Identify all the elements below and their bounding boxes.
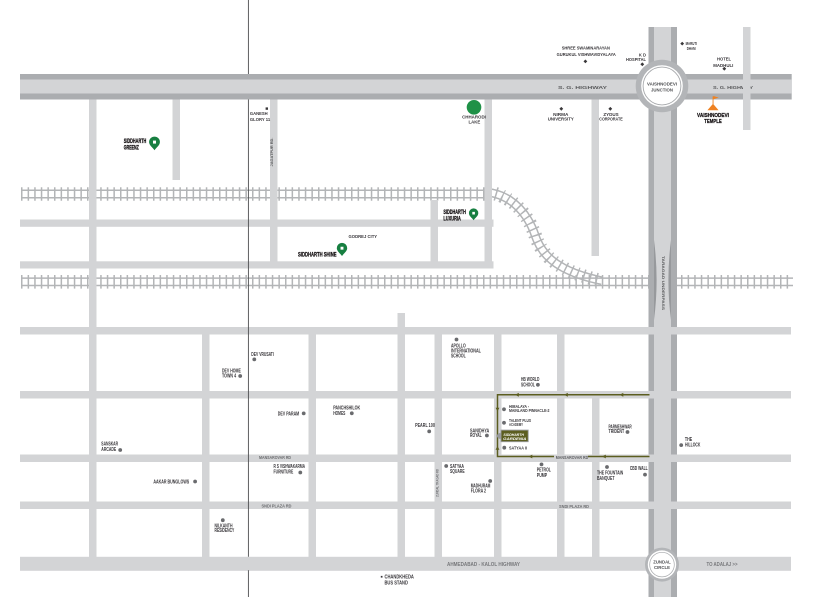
svg-text:TOWN 4: TOWN 4	[222, 373, 236, 379]
svg-text:ZUNDAL TRAGAD RD: ZUNDAL TRAGAD RD	[436, 469, 440, 497]
svg-text:CORPORATE: CORPORATE	[599, 117, 622, 122]
svg-text:VAISHNODEVI: VAISHNODEVI	[647, 81, 677, 86]
svg-text:LAKE: LAKE	[469, 120, 482, 126]
svg-text:FURNITURE: FURNITURE	[274, 470, 294, 476]
svg-text:ACADEMY: ACADEMY	[509, 422, 523, 427]
svg-text:SIDDHARTH: SIDDHARTH	[443, 210, 466, 216]
svg-text:JAGATPUR RD.: JAGATPUR RD.	[269, 138, 274, 167]
svg-text:GANESH: GANESH	[250, 111, 268, 117]
svg-text:MADHULI: MADHULI	[713, 63, 733, 68]
svg-text:GARDENIA: GARDENIA	[503, 437, 527, 441]
svg-text:GLORY 11: GLORY 11	[250, 117, 271, 123]
svg-text:HOTEL: HOTEL	[717, 56, 731, 61]
svg-text:SATYAA II: SATYAA II	[509, 445, 527, 450]
svg-text:DEV VRUSATI: DEV VRUSATI	[251, 352, 274, 358]
svg-text:TEMPLE: TEMPLE	[704, 119, 722, 125]
svg-text:ROYAL: ROYAL	[470, 433, 482, 439]
svg-text:SIDDHARTH: SIDDHARTH	[124, 139, 147, 145]
svg-text:RESIDENCY: RESIDENCY	[215, 528, 235, 534]
svg-text:JUNCTION: JUNCTION	[651, 87, 674, 92]
svg-text:AAKAR BUNGLOWS: AAKAR BUNGLOWS	[153, 480, 189, 486]
svg-text:SNDI PLAZA RD: SNDI PLAZA RD	[559, 504, 589, 509]
svg-text:GODREJ CITY: GODREJ CITY	[349, 234, 378, 239]
svg-text:GURUKUL VISHWAVIDYALAYA: GURUKUL VISHWAVIDYALAYA	[557, 52, 617, 58]
svg-text:SCHOOL: SCHOOL	[521, 382, 535, 388]
svg-text:MARUTI: MARUTI	[686, 41, 697, 46]
svg-text:DHAM: DHAM	[687, 46, 696, 51]
svg-text:HILLOCK: HILLOCK	[685, 443, 701, 449]
svg-text:DEV PARAM: DEV PARAM	[278, 412, 299, 418]
svg-text:ZUNDAL: ZUNDAL	[653, 559, 671, 564]
svg-text:LUXURIA: LUXURIA	[443, 216, 461, 222]
svg-text:SCHOOL: SCHOOL	[451, 354, 466, 360]
svg-text:GREENZ: GREENZ	[124, 145, 139, 151]
svg-text:TRIDENT: TRIDENT	[609, 429, 625, 435]
svg-text:MANSAROVAR RD: MANSAROVAR RD	[259, 455, 292, 460]
svg-text:SIDDHARTH SHINE: SIDDHARTH SHINE	[298, 252, 337, 258]
svg-text:AHMEDABAD - KALOL HIGHWAY: AHMEDABAD - KALOL HIGHWAY	[447, 562, 520, 568]
svg-text:BUS STAND: BUS STAND	[385, 580, 409, 586]
svg-text:CIRCLE: CIRCLE	[654, 565, 670, 570]
svg-text:SHREE SWAMINARAYAN: SHREE SWAMINARAYAN	[562, 46, 611, 52]
svg-text:FLORA 2: FLORA 2	[471, 489, 487, 495]
svg-text:HOMES: HOMES	[333, 411, 346, 417]
svg-text:BANQUET: BANQUET	[597, 476, 615, 482]
svg-text:SQUARE: SQUARE	[450, 469, 465, 475]
svg-text:SNDI PLAZA RD: SNDI PLAZA RD	[262, 503, 292, 508]
svg-text:HOSPITAL: HOSPITAL	[626, 57, 646, 62]
svg-text:UNIVERSITY: UNIVERSITY	[548, 117, 575, 122]
svg-text:PEARL 100: PEARL 100	[415, 423, 435, 429]
svg-text:MAINLAND PINNACLE-2: MAINLAND PINNACLE-2	[509, 408, 550, 413]
svg-text:TO ADALAJ >>: TO ADALAJ >>	[707, 562, 738, 568]
svg-text:PUMP: PUMP	[537, 473, 548, 479]
svg-text:ARCADE: ARCADE	[101, 447, 116, 453]
svg-text:TARAGAD UNDERPASS: TARAGAD UNDERPASS	[661, 256, 666, 310]
svg-text:CBD WALL: CBD WALL	[630, 466, 648, 472]
svg-text:S. G. HIGHWAY: S. G. HIGHWAY	[558, 85, 607, 90]
svg-text:MANSAROVAR RD: MANSAROVAR RD	[556, 455, 589, 460]
